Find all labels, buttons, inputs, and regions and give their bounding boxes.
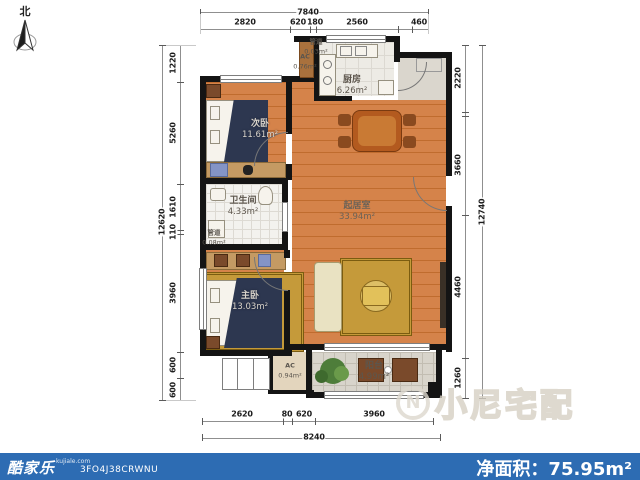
- wardrobe-decor: [243, 165, 253, 175]
- dim-right-seg: 2220: [454, 66, 463, 89]
- dim-top-seg: 180: [306, 18, 324, 27]
- net-area-unit: m²: [605, 459, 632, 480]
- room-area: 4.99m²: [359, 372, 390, 382]
- wall: [286, 76, 292, 134]
- room-label-living: 起居室 33.94m²: [339, 201, 375, 223]
- room-name: 管道: [304, 39, 327, 47]
- dim-right-total: 12740: [478, 198, 487, 227]
- wardrobe-box: [214, 254, 228, 267]
- dim-line: [465, 45, 466, 398]
- wall: [200, 178, 288, 184]
- footer-bar: 酷家乐 kujiale.com 3FO4J38CRWNU 净面积：75.95m²: [0, 453, 640, 480]
- wall: [446, 52, 452, 176]
- toilet: [258, 186, 273, 205]
- dim-bottom-seg: 80: [281, 410, 294, 419]
- dim-bottom-seg: 2620: [230, 410, 253, 419]
- stove-burner: [323, 76, 332, 85]
- kitchen-sink: [340, 46, 352, 56]
- room-label-duct-mid: 管道 0.08m²: [202, 230, 225, 249]
- room-name: 管道: [202, 230, 225, 238]
- watermark-logo-icon: N: [396, 386, 430, 420]
- hallway-floor: [292, 82, 314, 100]
- plant-leaf: [334, 366, 349, 381]
- dim-top-seg: 460: [410, 18, 428, 27]
- pillow: [210, 106, 220, 120]
- dim-bottom-total: 8240: [302, 433, 325, 442]
- room-area: 4.33m²: [228, 207, 259, 217]
- dining-chair: [338, 114, 351, 126]
- bay-window: [222, 358, 270, 390]
- dim-bottom-seg: 620: [295, 410, 313, 419]
- room-label-bath: 卫生间 4.33m²: [228, 196, 259, 218]
- wall: [306, 350, 312, 396]
- dim-left-seg: 1610: [169, 195, 178, 218]
- window-bed2: [220, 75, 282, 83]
- nightstand: [206, 336, 220, 349]
- dim-right-seg: 3660: [454, 153, 463, 176]
- kujiale-domain: kujiale.com: [56, 458, 90, 465]
- dim-left-seg: 600: [169, 381, 178, 399]
- net-area-label: 净面积：: [476, 459, 548, 480]
- room-name: 主卧: [232, 291, 268, 302]
- room-name: AC: [278, 363, 301, 371]
- compass-north-label: 北: [8, 3, 42, 19]
- kitchen-sink: [355, 46, 367, 56]
- dim-left-seg: 600: [169, 356, 178, 374]
- dim-right-seg: 4460: [454, 275, 463, 298]
- room-label-kitchen: 厨房 6.26m²: [337, 75, 368, 97]
- dim-top-seg: 620: [289, 18, 307, 27]
- plan-code: 3FO4J38CRWNU: [80, 465, 158, 475]
- dim-top-seg: 2820: [233, 18, 256, 27]
- dim-bottom-seg: 3960: [362, 410, 385, 419]
- net-area: 净面积：75.95m²: [476, 455, 632, 480]
- room-label-master: 主卧 13.03m²: [232, 291, 268, 313]
- room-label-balcony: 阳台 4.99m²: [359, 361, 390, 383]
- wardrobe-box: [236, 254, 250, 267]
- room-name: 阳台: [359, 361, 390, 372]
- room-area: 0.76m²: [293, 63, 316, 71]
- wall: [394, 36, 400, 62]
- watermark: N 小尼宅配: [396, 380, 575, 426]
- room-area: 11.61m²: [242, 130, 278, 140]
- room-label-bed2: 次卧 11.61m²: [242, 119, 278, 141]
- laundry-basket: [210, 163, 228, 177]
- wall: [200, 350, 292, 356]
- plant-leaf: [315, 370, 328, 383]
- dim-left-seg: 3960: [169, 281, 178, 304]
- pillow: [210, 318, 220, 333]
- bay-window-mullion: [237, 359, 238, 389]
- bath-sliding-door: [282, 202, 288, 232]
- dining-table-top: [358, 116, 396, 146]
- room-name: AC: [293, 54, 316, 62]
- coffee-table: [362, 286, 390, 306]
- dim-left-seg: 5260: [169, 121, 178, 144]
- room-label-ac-top: AC 0.76m²: [293, 54, 316, 73]
- balcony-cabinet: [392, 358, 418, 382]
- window-master: [199, 268, 207, 330]
- room-area: 0.08m²: [202, 239, 225, 247]
- room-label-ac-bottom: AC 0.94m²: [278, 363, 301, 382]
- watermark-text: 小尼宅配: [435, 380, 575, 426]
- wall: [398, 52, 452, 58]
- dim-line: [180, 45, 181, 400]
- room-area: 13.03m²: [232, 302, 268, 312]
- wall: [294, 78, 319, 82]
- room-name: 次卧: [242, 119, 278, 130]
- pillow: [210, 288, 220, 303]
- room-name: 卫生间: [228, 196, 259, 207]
- dim-top-total: 7840: [296, 8, 319, 17]
- room-name: 厨房: [337, 75, 368, 86]
- dining-chair: [403, 136, 416, 148]
- dining-chair: [338, 136, 351, 148]
- dim-left-total: 12620: [158, 208, 167, 237]
- sofa: [314, 262, 342, 332]
- sink: [210, 188, 226, 201]
- room-area: 6.26m²: [337, 86, 368, 96]
- dim-left-seg: 110: [169, 223, 178, 241]
- room-area: 33.94m²: [339, 212, 375, 222]
- wall: [282, 180, 288, 202]
- fridge: [378, 80, 394, 95]
- kujiale-logo[interactable]: 酷家乐: [7, 457, 55, 478]
- dim-left-seg: 1220: [169, 51, 178, 74]
- room-name: 起居室: [339, 201, 375, 212]
- balcony-sliding-door: [324, 343, 430, 351]
- wall: [284, 290, 290, 350]
- dining-chair: [403, 114, 416, 126]
- stove-burner: [323, 60, 332, 69]
- floorplan-page: 北: [0, 0, 640, 480]
- wall: [446, 206, 452, 352]
- net-area-value: 75.95: [548, 459, 605, 480]
- bay-window-mullion: [253, 359, 254, 389]
- dim-top-seg: 2560: [345, 18, 368, 27]
- dim-line: [200, 29, 428, 30]
- pillow: [210, 130, 220, 144]
- compass-needle-icon: [12, 19, 38, 53]
- window-kitchen: [326, 35, 386, 43]
- nightstand: [206, 84, 221, 98]
- compass: 北: [8, 3, 42, 57]
- room-area: 0.94m²: [278, 372, 301, 380]
